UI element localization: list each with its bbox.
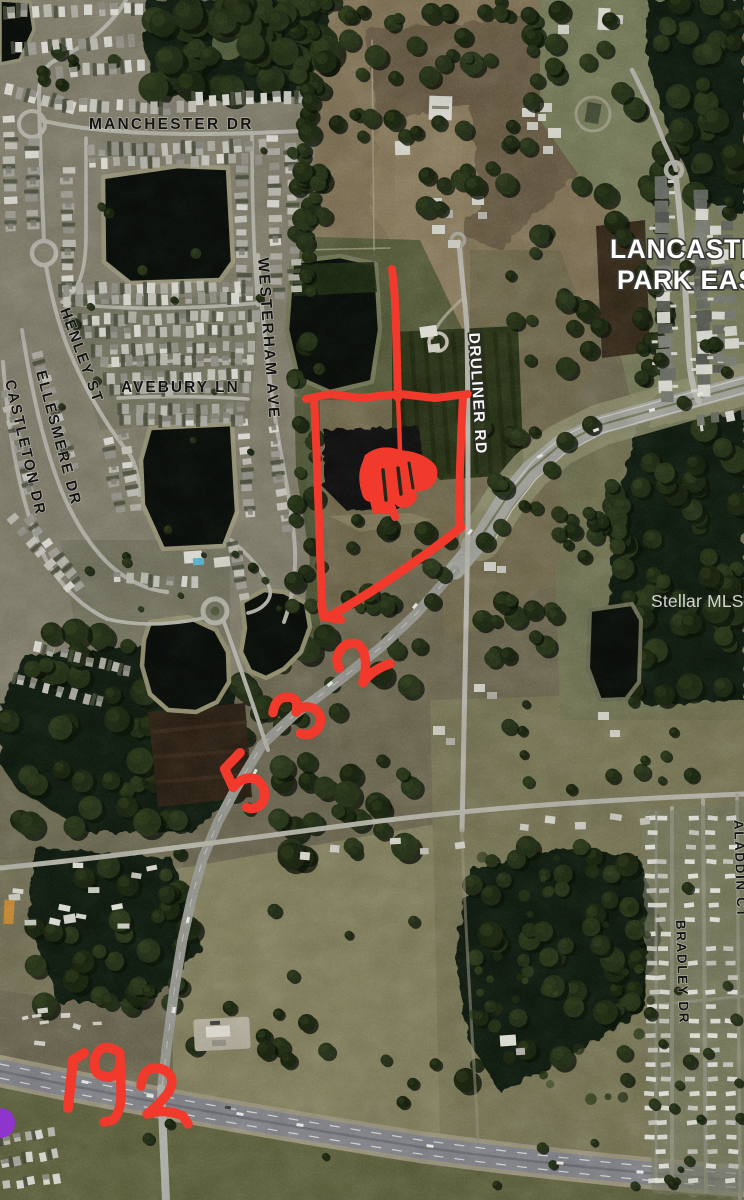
svg-text:PARK EAST: PARK EAST bbox=[617, 265, 744, 295]
svg-text:MANCHESTER DR: MANCHESTER DR bbox=[89, 116, 254, 133]
svg-text:AVEBURY LN: AVEBURY LN bbox=[121, 379, 240, 396]
svg-text:LANCASTER: LANCASTER bbox=[610, 234, 744, 264]
svg-text:Stellar MLS: Stellar MLS bbox=[651, 591, 744, 611]
